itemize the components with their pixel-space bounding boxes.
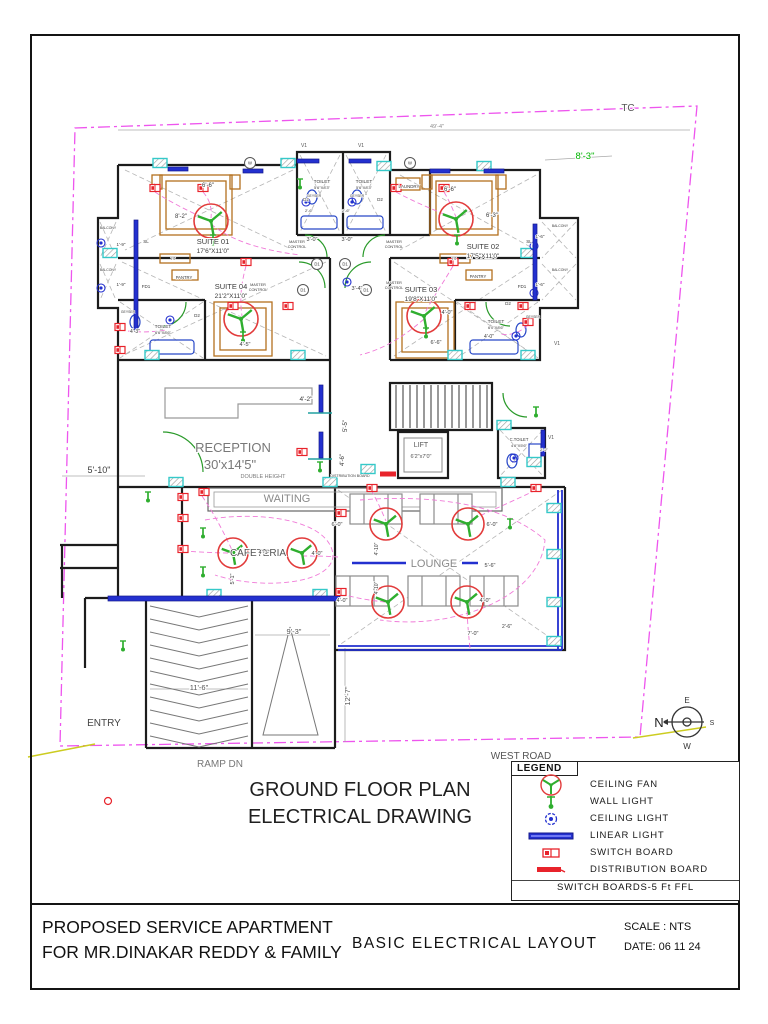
- ceiling-light-icon: [512, 811, 590, 827]
- legend-footer-note: SWITCH BOARDS-5 Ft FFL: [512, 880, 739, 893]
- project-name: PROPOSED SERVICE APARTMENT FOR MR.DINAKA…: [42, 915, 342, 966]
- legend-row-linear-light: LINEAR LIGHT: [512, 827, 739, 844]
- legend-row-switch-board: SWITCH BOARD: [512, 844, 739, 861]
- legend-label: DISTRIBUTION BOARD: [590, 864, 708, 875]
- date-note: DATE: 06 11 24: [624, 941, 701, 953]
- legend-label: SWITCH BOARD: [590, 847, 674, 858]
- legend-label: LINEAR LIGHT: [590, 830, 665, 841]
- wall-light-icon: [512, 794, 590, 810]
- legend-label: WALL LIGHT: [590, 796, 654, 807]
- drawing-sheet: WWD1D1D1D1 GROUND FLOOR PLANELECTRICAL D…: [0, 0, 768, 1024]
- legend-row-distribution-board: DISTRIBUTION BOARD: [512, 861, 739, 878]
- legend-row-wall-light: WALL LIGHT: [512, 793, 739, 810]
- project-name-line1: PROPOSED SERVICE APARTMENT: [42, 915, 342, 940]
- linear-light-icon: [512, 832, 590, 840]
- legend-box: LEGEND CEILING FAN WALL LIGHT CEILING LI…: [511, 761, 740, 901]
- project-name-line2: FOR MR.DINAKAR REDDY & FAMILY: [42, 940, 342, 965]
- scale-note: SCALE : NTS: [624, 921, 691, 933]
- title-block: PROPOSED SERVICE APARTMENT FOR MR.DINAKA…: [30, 903, 738, 988]
- drawing-title: BASIC ELECTRICAL LAYOUT: [352, 935, 598, 953]
- legend-row-ceiling-light: CEILING LIGHT: [512, 810, 739, 827]
- legend-row-ceiling-fan: CEILING FAN: [512, 776, 739, 793]
- legend-label: CEILING LIGHT: [590, 813, 669, 824]
- switch-board-icon: [512, 848, 590, 858]
- legend-label: CEILING FAN: [590, 779, 658, 790]
- distribution-board-icon: [512, 866, 590, 874]
